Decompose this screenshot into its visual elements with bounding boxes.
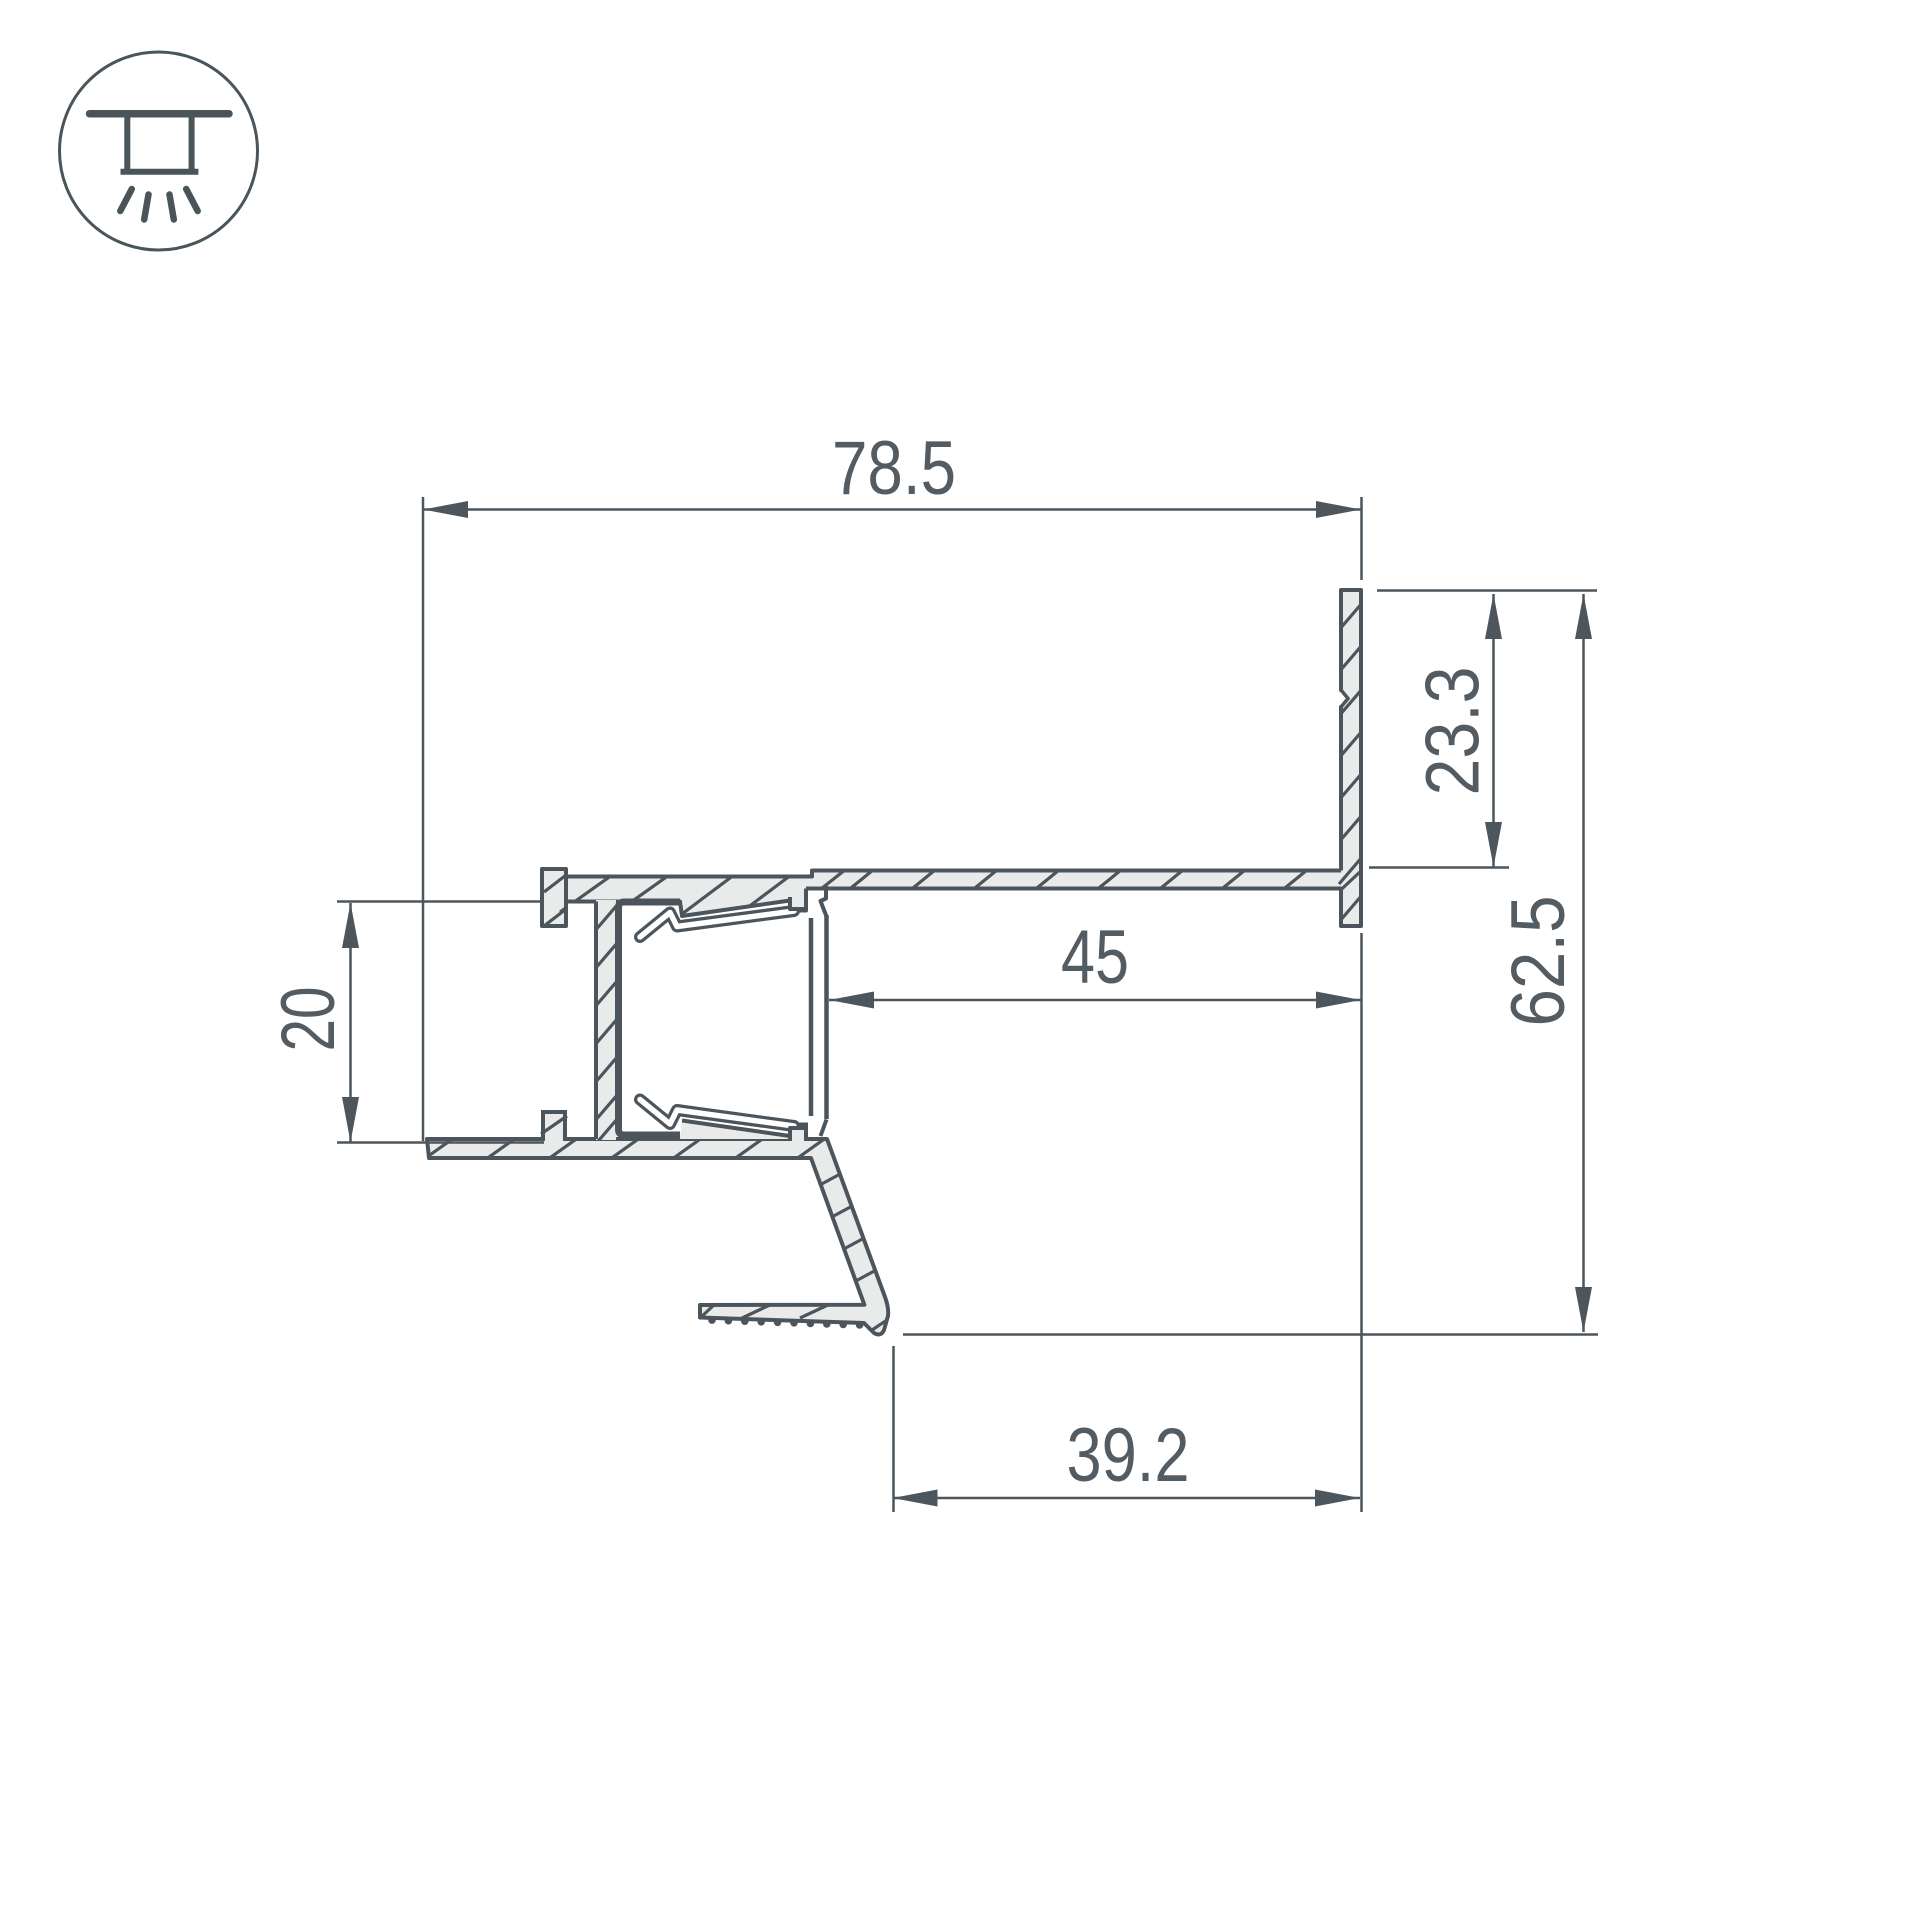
svg-text:23.3: 23.3: [1411, 667, 1496, 796]
svg-text:39.2: 39.2: [1067, 1413, 1190, 1498]
svg-text:62.5: 62.5: [1496, 896, 1581, 1027]
svg-text:20: 20: [266, 987, 351, 1052]
svg-text:45: 45: [1061, 915, 1129, 1000]
svg-text:78.5: 78.5: [832, 426, 956, 511]
